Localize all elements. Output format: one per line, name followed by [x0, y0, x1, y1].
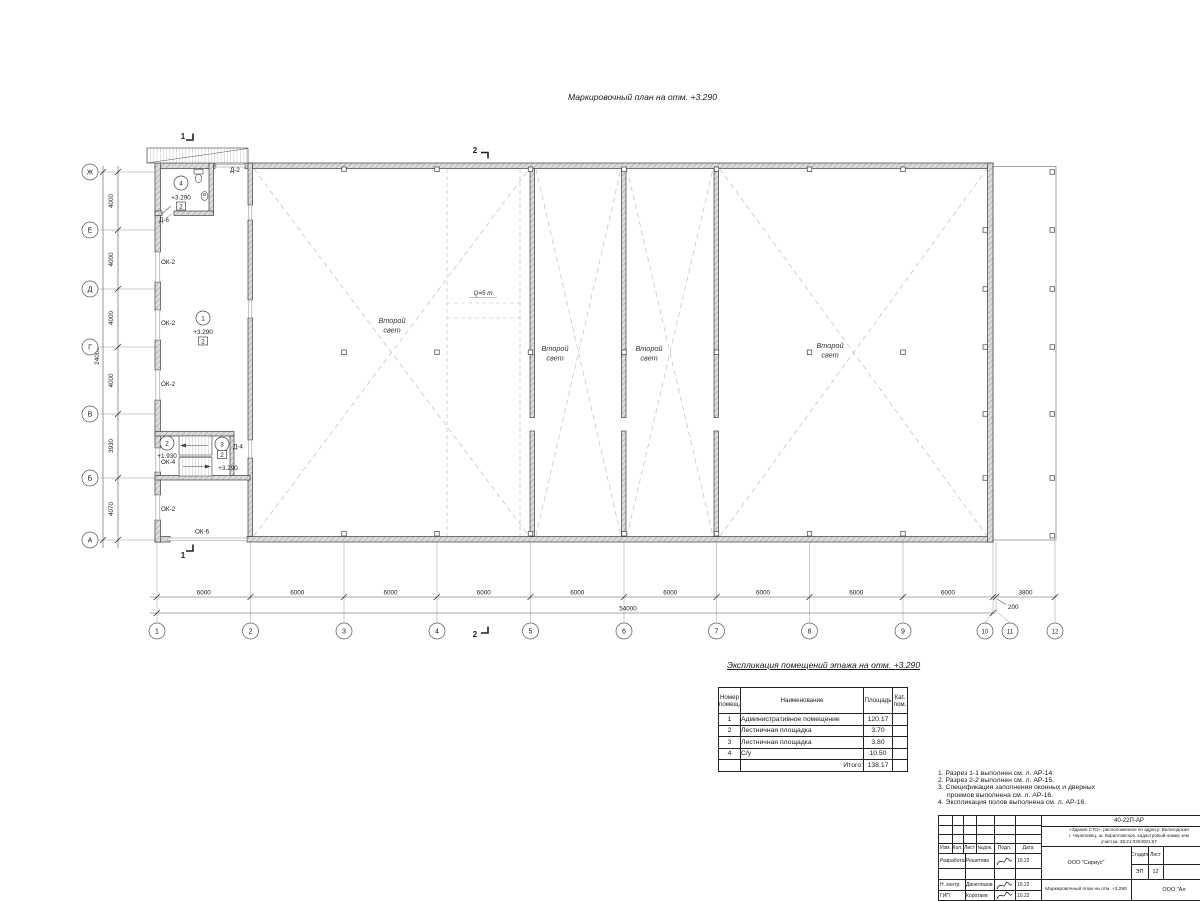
stamp-role-4: ГИП	[940, 893, 965, 899]
stamp-col-podl: Подл.	[994, 843, 1015, 853]
dim-annex: 3800	[1018, 590, 1033, 597]
axis-letter-g: Г	[88, 345, 92, 352]
row4-name: С/у	[741, 748, 864, 760]
stamp-name-3: Двоеглазов	[966, 882, 994, 888]
stamp-col-izm: Изм.	[939, 843, 952, 853]
room-1-number: 1	[201, 315, 205, 322]
row4-area: 10.50	[864, 748, 893, 760]
stamp-sheet-value: 12	[1148, 864, 1163, 879]
table-row: 2 Лестничная площадка 3.70	[719, 725, 908, 737]
crane-runway-lines	[447, 169, 520, 536]
second-light-2-line2: свет	[546, 354, 563, 363]
row3-cat	[893, 737, 908, 749]
total-label: Итого:	[741, 760, 864, 772]
second-light-2-line1: Второй	[541, 344, 568, 353]
dim-bottom-6: 6000	[756, 590, 771, 597]
interior-stair	[179, 436, 212, 476]
row4-cat	[893, 748, 908, 760]
note-line: 4. Экспликация полов выполнена см. л. АР…	[938, 799, 1095, 806]
row3-name: Лестничная площадка	[741, 737, 864, 749]
dim-left-5: 4070	[108, 502, 115, 517]
second-light-1-line2: свет	[383, 326, 400, 335]
signature-scribble	[995, 890, 1014, 901]
row1-cat	[893, 714, 908, 726]
room-4-elevation: +3.290	[171, 195, 191, 202]
axis-bubbles-numbers	[149, 623, 1063, 639]
axis-9: 9	[901, 629, 905, 636]
annex-outline	[993, 167, 1056, 541]
door-d4-label: Д-4	[233, 444, 243, 451]
stamp-doc-number: 40-22П-АР	[1041, 816, 1200, 826]
explication-title: Экспликация помещений этажа на отм. +3.2…	[727, 660, 920, 670]
door-leaf-d6	[162, 206, 171, 214]
axis-letter-d: Д	[88, 287, 93, 294]
second-light-4-line2: свет	[821, 351, 838, 360]
row2-num: 2	[719, 725, 741, 737]
stamp-col-data: Дата	[1015, 843, 1041, 853]
exterior-stair	[147, 148, 248, 163]
plan-title: Маркировочный план на отм. +3.290	[568, 92, 717, 102]
dim-bottom-1: 6000	[290, 590, 305, 597]
stamp-address-line3: участка: 35:21:0304001:67	[1041, 839, 1200, 845]
col-room-number: Номерпомещ.	[719, 688, 741, 714]
axis-2: 2	[249, 629, 253, 636]
axis-3: 3	[342, 629, 346, 636]
second-light-3-line1: Второй	[635, 344, 662, 353]
axis-number-labels: 1 2 3 4 5 6 7 8 9 10 11 12	[155, 629, 1059, 636]
table-row: 3 Лестничная площадка 3.80	[719, 737, 908, 749]
dimension-lines	[103, 166, 1057, 613]
axis-10: 10	[982, 629, 989, 635]
walls	[155, 163, 993, 542]
section-marks: 1 1 2 2	[181, 132, 488, 639]
note-line: проемов выполнена см. л. АР-16.	[938, 792, 1095, 799]
total-row: Итого: 138.17	[719, 760, 908, 772]
row1-area: 120.17	[864, 714, 893, 726]
dim-bottom-4: 6000	[570, 590, 585, 597]
stamp-name-4: Коротаев	[966, 893, 994, 899]
axis-letter-e: Е	[88, 228, 93, 235]
axis-11: 11	[1007, 629, 1014, 635]
room-3-floor-type: 2	[220, 452, 224, 459]
row4-num: 4	[719, 748, 741, 760]
axis-4: 4	[435, 629, 439, 636]
section-2-top-label: 2	[473, 146, 478, 155]
section-1-bottom-label: 1	[181, 551, 186, 560]
stamp-date-3: 10.22	[1017, 882, 1041, 888]
stamp-stage-value: ЭП	[1131, 864, 1148, 879]
axis-letter-zh: Ж	[87, 170, 94, 177]
axis-letter-v: В	[88, 412, 93, 419]
room-3-number: 3	[220, 441, 224, 448]
second-light-labels: Второй свет Второй свет Второй свет Втор…	[378, 316, 843, 363]
crane-capacity-label: Q=5 т	[473, 290, 492, 297]
stamp-organization: ООО "Сириус"	[1041, 846, 1131, 879]
total-empty	[719, 760, 741, 772]
stamp-name-1: Решетова	[966, 858, 994, 864]
second-light-crosses	[254, 169, 987, 536]
stamp-date-4: 10.22	[1017, 893, 1041, 899]
axis-letter-b: Б	[88, 476, 93, 483]
stamp-stage-label: Стадия	[1131, 846, 1148, 864]
stamp-col-ndok: №док.	[976, 843, 994, 853]
total-value: 138.17	[864, 760, 893, 772]
window-ok2-label-3: ОК-2	[161, 381, 176, 388]
table-row: 4 С/у 10.50	[719, 748, 908, 760]
room-3-elevation: +3.290	[218, 465, 238, 472]
toilet-fixture	[194, 170, 203, 183]
window-ok4-label: ОК-4	[161, 459, 176, 466]
dim-left-4: 3930	[108, 439, 115, 454]
table-row: 1 Административное помещение 120.17	[719, 714, 908, 726]
dim-bottom-0: 6000	[197, 590, 212, 597]
grid-axis-lines	[98, 172, 1055, 623]
dimension-labels: 4000 4000 4000 4000 3930 4070 24000 6000…	[94, 194, 1033, 613]
row1-num: 1	[719, 714, 741, 726]
window-ok6-label: ОК-6	[195, 529, 210, 536]
col-area: Площадь	[864, 688, 893, 714]
row3-num: 3	[719, 737, 741, 749]
dim-left-2: 4000	[108, 311, 115, 326]
explication-header-row: Номерпомещ. Наименование Площадь Кат.пом…	[719, 688, 908, 714]
dim-bottom-7: 6000	[849, 590, 864, 597]
stamp-role-3: Н. контр.	[940, 882, 965, 888]
stamp-role-1: Разработал	[940, 858, 965, 864]
stamp-sheet-label: Лист	[1148, 846, 1163, 864]
note-line: 2. Разрез 2-2 выполнен см. л. АР-15.	[938, 777, 1095, 784]
windows	[156, 165, 252, 541]
second-light-3-line2: свет	[640, 354, 657, 363]
room-1-floor-type: 2	[201, 338, 205, 345]
window-ok2-label-1: ОК-2	[161, 259, 176, 266]
stamp-drawing-title: Маркировочный план на отм. +3.290	[1041, 879, 1131, 900]
stamp-col-list: Лист	[963, 843, 976, 853]
stamp-organization-2: ООО "Ал	[1131, 879, 1200, 900]
total-cat	[893, 760, 908, 772]
floor-plan-drawing: 4000 4000 4000 4000 3930 4070 24000 6000…	[0, 0, 1200, 900]
door-d6-label: Д-6	[159, 217, 169, 224]
axis-letter-a: А	[88, 538, 93, 545]
window-ok2-label-2: ОК-2	[161, 320, 176, 327]
room-1-elevation: +3.290	[193, 329, 213, 336]
axis-7: 7	[715, 629, 719, 636]
notes-block: 1. Разрез 1-1 выполнен см. л. АР-14. 2. …	[938, 770, 1095, 806]
dim-bottom-8: 6000	[941, 590, 956, 597]
room-4-floor-type: 2	[179, 203, 183, 210]
dimension-ticks	[100, 169, 1058, 616]
axis-6: 6	[622, 629, 626, 636]
signature-scribble	[995, 856, 1014, 867]
stamp-col-kol: Кол.	[952, 843, 963, 853]
section-2-bottom-label: 2	[473, 630, 478, 639]
row1-name: Административное помещение	[741, 714, 864, 726]
row2-cat	[893, 725, 908, 737]
dim-bottom-3: 6000	[477, 590, 492, 597]
sink-fixture	[201, 192, 208, 201]
stamp-date-1: 10.22	[1017, 858, 1041, 864]
room-2-number: 2	[165, 440, 169, 447]
row2-area: 3.70	[864, 725, 893, 737]
row3-area: 3.80	[864, 737, 893, 749]
second-light-4-line1: Второй	[816, 341, 843, 350]
dim-bottom-5: 6000	[663, 590, 678, 597]
note-line: 3. Спецификация заполнения оконных и две…	[938, 784, 1095, 791]
axis-1: 1	[155, 629, 159, 636]
dim-bottom-total: 54000	[619, 606, 637, 613]
door-d2-label: Д-2	[230, 167, 240, 174]
dim-bottom-2: 6000	[383, 590, 398, 597]
section-1-top-label: 1	[181, 132, 186, 141]
axis-8: 8	[808, 629, 812, 636]
dim-left-3: 4000	[108, 373, 115, 388]
row2-name: Лестничная площадка	[741, 725, 864, 737]
col-category: Кат.пом.	[893, 688, 908, 714]
explication-table: Номерпомещ. Наименование Площадь Кат.пом…	[718, 687, 908, 772]
room-4-number: 4	[179, 180, 183, 187]
window-ok2-label-4: ОК-2	[161, 506, 176, 513]
axis-12: 12	[1052, 629, 1059, 635]
title-block: Изм. Кол. Лист №док. Подл. Дата Разработ…	[938, 815, 1200, 901]
dim-left-0: 4000	[108, 194, 115, 209]
col-name: Наименование	[741, 688, 864, 714]
second-light-1-line1: Второй	[378, 316, 405, 325]
note-line: 1. Разрез 1-1 выполнен см. л. АР-14.	[938, 770, 1095, 777]
axis-5: 5	[529, 629, 533, 636]
dim-left-1: 4000	[108, 252, 115, 267]
crane-label-group: Q=5 т	[469, 290, 497, 298]
dim-gap-200: 200	[1008, 604, 1019, 611]
